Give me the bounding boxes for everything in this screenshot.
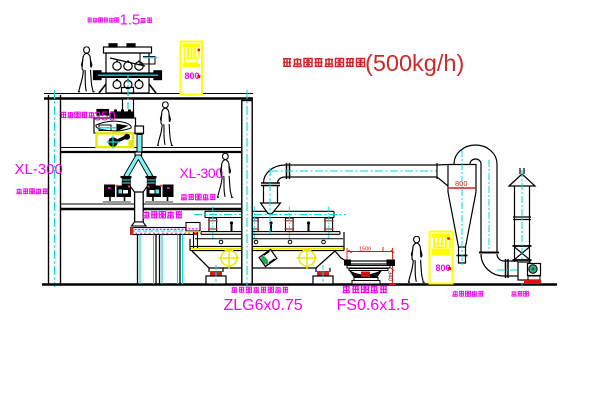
svg-text:(500kg/h): (500kg/h): [365, 50, 464, 76]
svg-text:ZLG6x0.75: ZLG6x0.75: [224, 297, 303, 314]
svg-text:FS0.6x1.5: FS0.6x1.5: [337, 297, 410, 314]
svg-text:1.5: 1.5: [120, 12, 141, 29]
svg-text:XL-300: XL-300: [180, 165, 224, 181]
svg-text:800: 800: [185, 71, 200, 81]
svg-text:1500: 1500: [359, 247, 371, 253]
svg-text:XL-300: XL-300: [15, 161, 63, 178]
svg-text:350: 350: [94, 109, 116, 124]
svg-text:340: 340: [387, 271, 393, 282]
svg-text:800: 800: [455, 179, 468, 188]
